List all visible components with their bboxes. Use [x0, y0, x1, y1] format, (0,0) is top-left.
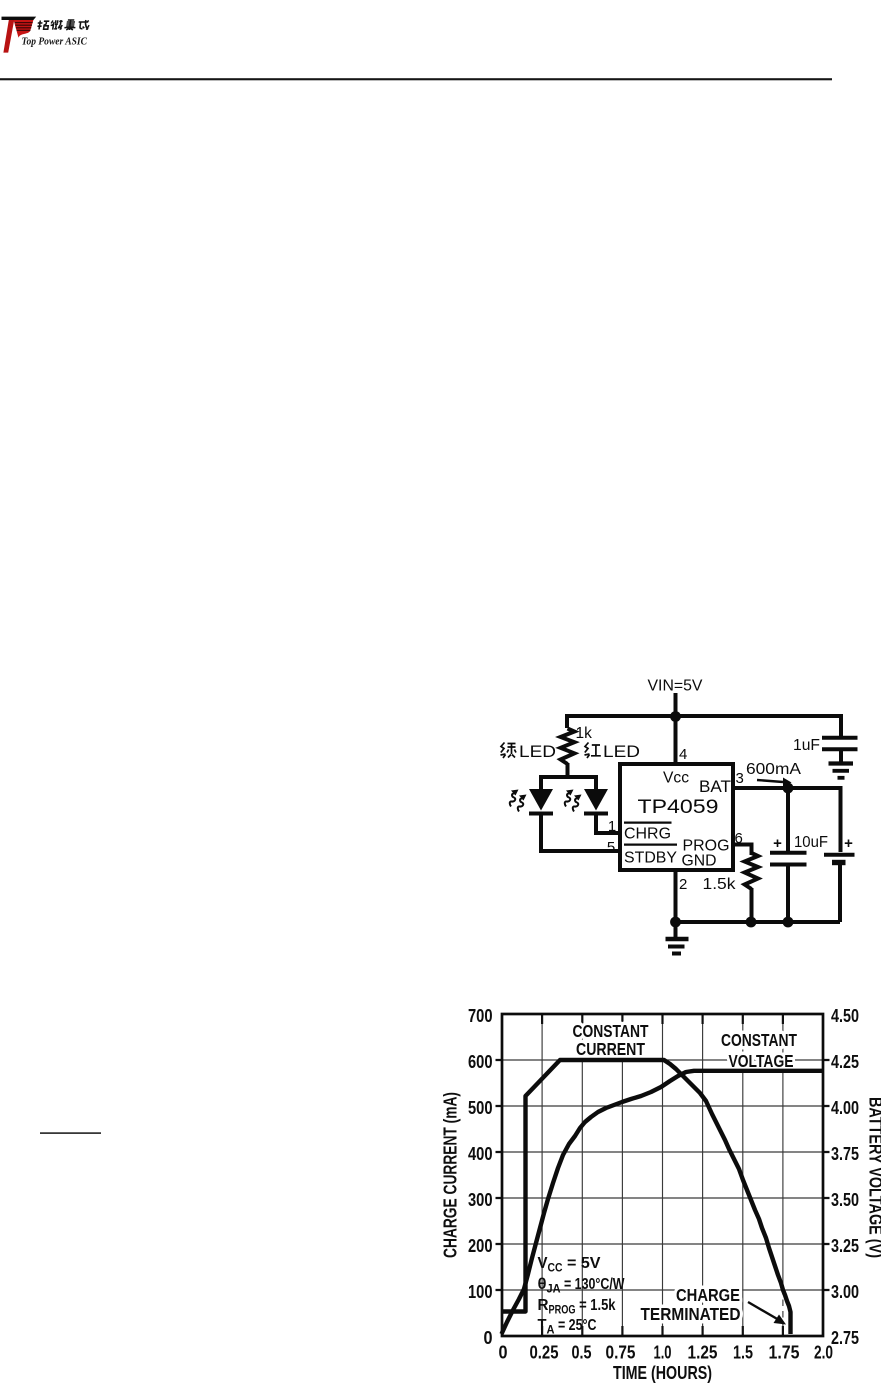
svg-text:TIME (HOURS): TIME (HOURS)	[613, 1363, 712, 1383]
svg-text:4.25: 4.25	[831, 1051, 859, 1072]
svg-text:VOLTAGE: VOLTAGE	[729, 1051, 794, 1071]
svg-text:500: 500	[468, 1097, 493, 1118]
svg-text:300: 300	[468, 1189, 493, 1210]
svg-text:BATTERY VOLTAGE (V): BATTERY VOLTAGE (V)	[866, 1097, 881, 1258]
svg-text:100: 100	[468, 1281, 493, 1302]
svg-text:0.5: 0.5	[572, 1342, 592, 1363]
svg-text:4.50: 4.50	[831, 1005, 859, 1026]
svg-text:BAT: BAT	[699, 778, 731, 796]
svg-text:200: 200	[468, 1235, 493, 1256]
svg-text:2: 2	[679, 876, 687, 893]
svg-text:CONSTANT: CONSTANT	[573, 1021, 649, 1041]
svg-text:2.0: 2.0	[814, 1342, 833, 1363]
svg-text:Vcc: Vcc	[663, 770, 689, 787]
svg-text:1uF: 1uF	[793, 737, 820, 754]
svg-text:1.75: 1.75	[769, 1342, 800, 1363]
svg-text:+: +	[773, 835, 782, 852]
svg-text:4.00: 4.00	[831, 1097, 859, 1118]
svg-text:10uF: 10uF	[794, 834, 828, 851]
svg-text:0.25: 0.25	[530, 1342, 559, 1363]
svg-text:1: 1	[608, 818, 616, 835]
svg-text:RPROG = 1.5k: RPROG = 1.5k	[538, 1297, 616, 1317]
svg-text:VCC = 5V: VCC = 5V	[538, 1255, 601, 1275]
svg-text:0.75: 0.75	[606, 1342, 636, 1363]
svg-text:400: 400	[468, 1143, 493, 1164]
svg-text:600: 600	[468, 1051, 493, 1072]
svg-text:700: 700	[468, 1005, 493, 1026]
svg-text:CHARGE CURRENT (mA): CHARGE CURRENT (mA)	[441, 1092, 461, 1258]
svg-text:STDBY: STDBY	[624, 850, 677, 867]
svg-text:LED: LED	[519, 743, 556, 761]
svg-text:3.00: 3.00	[831, 1281, 859, 1302]
svg-text:1k: 1k	[576, 725, 593, 742]
svg-text:GND: GND	[682, 853, 717, 870]
svg-text:3.75: 3.75	[831, 1143, 859, 1164]
svg-text:3: 3	[736, 770, 744, 787]
svg-text:θJA = 130°C/W: θJA = 130°C/W	[538, 1276, 626, 1296]
svg-text:TA = 25°C: TA = 25°C	[538, 1317, 597, 1337]
svg-text:TP4059: TP4059	[638, 796, 719, 818]
svg-text:VIN=5V: VIN=5V	[648, 678, 704, 695]
svg-text:CURRENT: CURRENT	[576, 1039, 645, 1059]
svg-text:Top Power ASIC: Top Power ASIC	[22, 37, 88, 48]
svg-text:600mA: 600mA	[746, 761, 801, 778]
svg-text:+: +	[844, 835, 853, 852]
svg-text:TERMINATED: TERMINATED	[641, 1304, 741, 1324]
svg-text:CONSTANT: CONSTANT	[721, 1030, 797, 1050]
svg-text:4: 4	[679, 746, 687, 763]
svg-text:1.5k: 1.5k	[703, 876, 737, 893]
svg-text:0: 0	[484, 1327, 493, 1348]
svg-text:LED: LED	[603, 743, 640, 761]
svg-text:5: 5	[607, 839, 615, 856]
svg-text:6: 6	[735, 830, 743, 847]
svg-text:CHRG: CHRG	[624, 826, 671, 843]
svg-text:1.25: 1.25	[688, 1342, 718, 1363]
svg-text:CHARGE: CHARGE	[676, 1285, 740, 1305]
svg-text:3.25: 3.25	[831, 1235, 859, 1256]
svg-text:2.75: 2.75	[831, 1327, 859, 1348]
svg-text:1.0: 1.0	[654, 1342, 672, 1363]
svg-text:0: 0	[499, 1342, 508, 1363]
svg-text:3.50: 3.50	[831, 1189, 859, 1210]
svg-text:1.5: 1.5	[733, 1342, 753, 1363]
